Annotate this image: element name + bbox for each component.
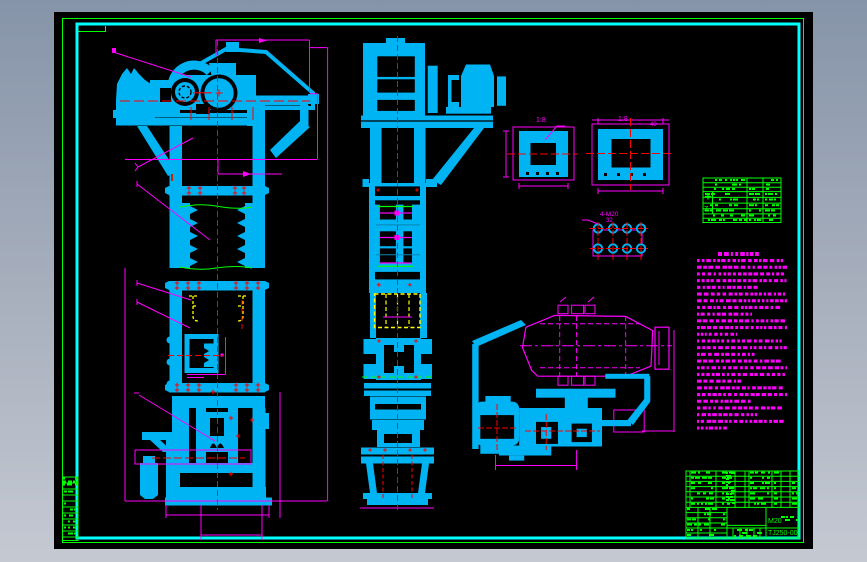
svg-text:TJ250-00: TJ250-00	[768, 530, 798, 537]
svg-text:M20: M20	[768, 518, 782, 525]
svg-text:1:8: 1:8	[536, 117, 546, 124]
svg-text:40: 40	[650, 122, 657, 128]
svg-text:Z: Z	[704, 206, 709, 213]
svg-text:1:8: 1:8	[618, 116, 628, 123]
svg-text:32: 32	[606, 218, 613, 224]
svg-text:4-M20: 4-M20	[600, 211, 619, 218]
